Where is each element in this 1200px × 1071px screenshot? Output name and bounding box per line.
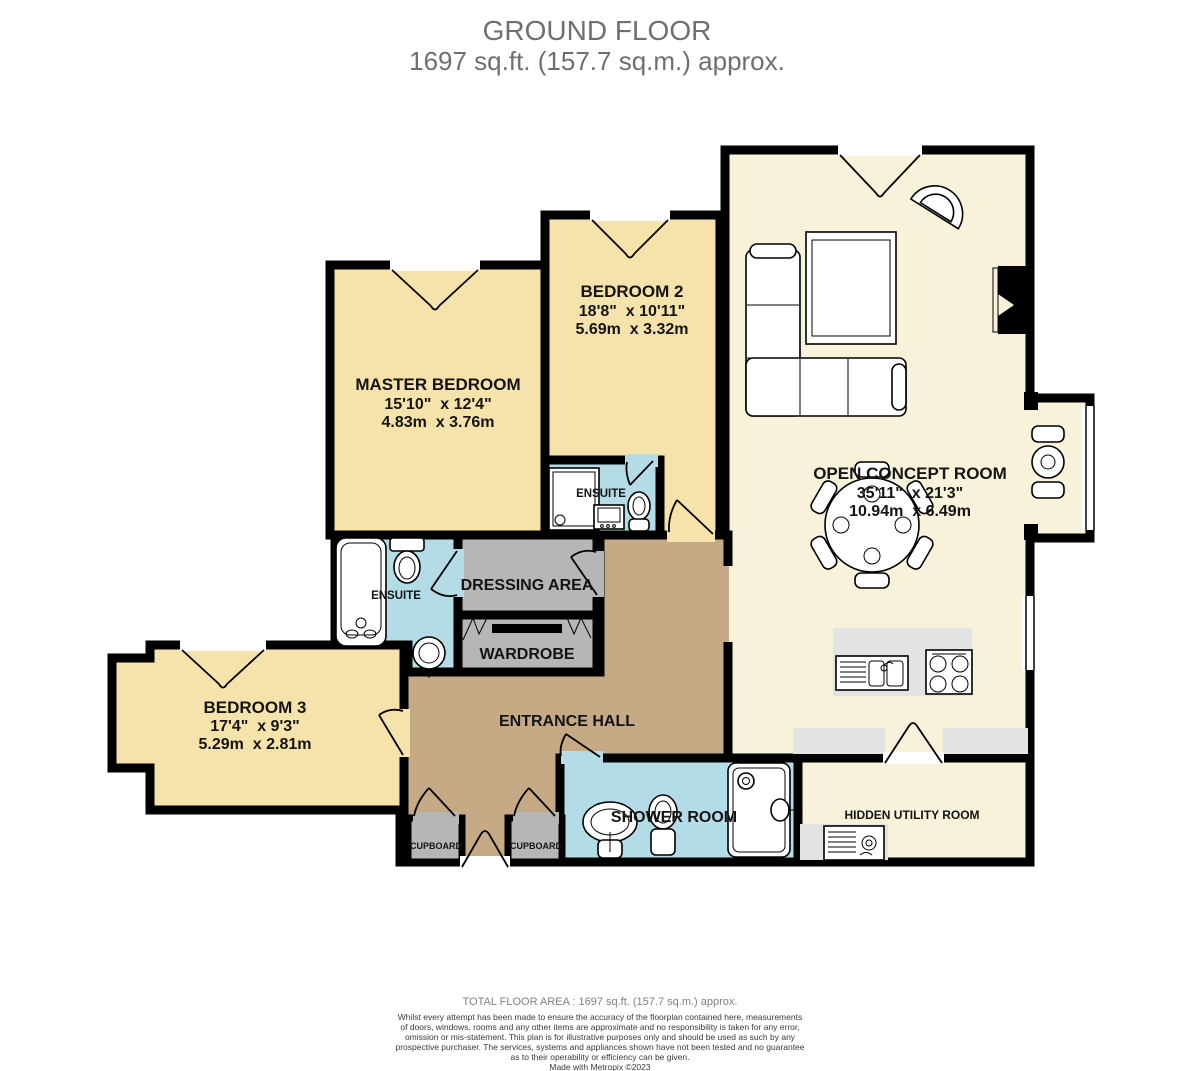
disclaimer-line-2: of doors, windows, rooms and any other i… <box>400 1022 799 1032</box>
label-entrance-hall: ENTRANCE HALL <box>499 713 635 730</box>
label-ensuite-bedroom2: ENSUITE <box>576 488 626 500</box>
bay-table-set <box>1032 426 1064 498</box>
room-wardrobe-floor <box>458 615 597 672</box>
label-master-bedroom-imperial: 15'10" x 12'4" <box>384 396 491 413</box>
label-dressing-area: DRESSING AREA <box>461 577 594 594</box>
label-shower-room: SHOWER ROOM <box>611 809 737 826</box>
opening-hall-to-open-concept <box>720 566 735 642</box>
floorplan-canvas: GROUND FLOOR 1697 sq.ft. (157.7 sq.m.) a… <box>0 0 1200 1071</box>
label-open-concept: OPEN CONCEPT ROOM <box>813 464 1007 483</box>
title-block: GROUND FLOOR 1697 sq.ft. (157.7 sq.m.) a… <box>409 15 785 76</box>
floor-title: GROUND FLOOR <box>483 15 712 46</box>
rug <box>806 232 896 344</box>
floorplan-page: GROUND FLOOR 1697 sq.ft. (157.7 sq.m.) a… <box>0 0 1200 1071</box>
label-wardrobe: WARDROBE <box>479 646 574 663</box>
floor-area-subtitle: 1697 sq.ft. (157.7 sq.m.) approx. <box>409 46 785 76</box>
counter-left <box>793 728 885 754</box>
label-bedroom2: BEDROOM 2 <box>581 282 684 301</box>
label-bedroom3-imperial: 17'4" x 9'3" <box>210 718 300 735</box>
shower-cabinet <box>728 763 796 857</box>
label-bedroom3: BEDROOM 3 <box>204 698 307 717</box>
hob <box>926 650 972 694</box>
kitchen-sink-unit <box>836 656 908 690</box>
label-cupboard-left: CUPBOARD <box>410 841 463 851</box>
total-floor-area: TOTAL FLOOR AREA : 1697 sq.ft. (157.7 sq… <box>463 996 738 1008</box>
disclaimer-line-1: Whilst every attempt has been made to en… <box>398 1012 802 1022</box>
label-cupboard-right: CUPBOARD <box>510 841 563 851</box>
wardrobe-rail <box>492 624 562 633</box>
room-dressing-floor <box>458 535 597 615</box>
label-master-bedroom-metric: 4.83m x 3.76m <box>382 414 495 431</box>
label-bedroom2-metric: 5.69m x 3.32m <box>576 321 689 338</box>
label-bedroom3-metric: 5.29m x 2.81m <box>199 736 312 753</box>
bay-wall-stub-top <box>1024 392 1038 410</box>
utility-fixtures <box>824 826 884 860</box>
counter-right <box>943 728 1028 754</box>
label-ensuite-master: ENSUITE <box>371 590 421 602</box>
sink-ensuite2 <box>594 505 624 529</box>
label-master-bedroom: MASTER BEDROOM <box>355 375 520 394</box>
room-cupboard-right-floor <box>508 818 562 862</box>
washing-machine <box>824 826 884 860</box>
disclaimer-line-3: omission or mis-statement. This plan is … <box>405 1032 796 1042</box>
label-hidden-utility: HIDDEN UTILITY ROOM <box>844 808 979 822</box>
disclaimer-line-4: prospective purchaser. The services, sys… <box>395 1042 804 1052</box>
window-bay-icon <box>1082 406 1098 530</box>
disclaimer-line-5: as to their operability or efficiency ca… <box>511 1052 690 1062</box>
label-open-concept-imperial: 35'11" x 21'3" <box>857 485 963 502</box>
metropix-credit: Made with Metropix ©2023 <box>549 1062 651 1071</box>
room-cupboard-left-floor <box>408 818 462 862</box>
bay-wall-stub-bottom <box>1024 524 1038 540</box>
label-bedroom2-imperial: 18'8" x 10'11" <box>579 303 685 320</box>
window-right-wall-icon <box>1022 596 1038 670</box>
toilet-ensuite2 <box>628 492 650 531</box>
footer-block: TOTAL FLOOR AREA : 1697 sq.ft. (157.7 sq… <box>395 996 804 1071</box>
label-open-concept-metric: 10.94m x 6.49m <box>849 503 971 520</box>
